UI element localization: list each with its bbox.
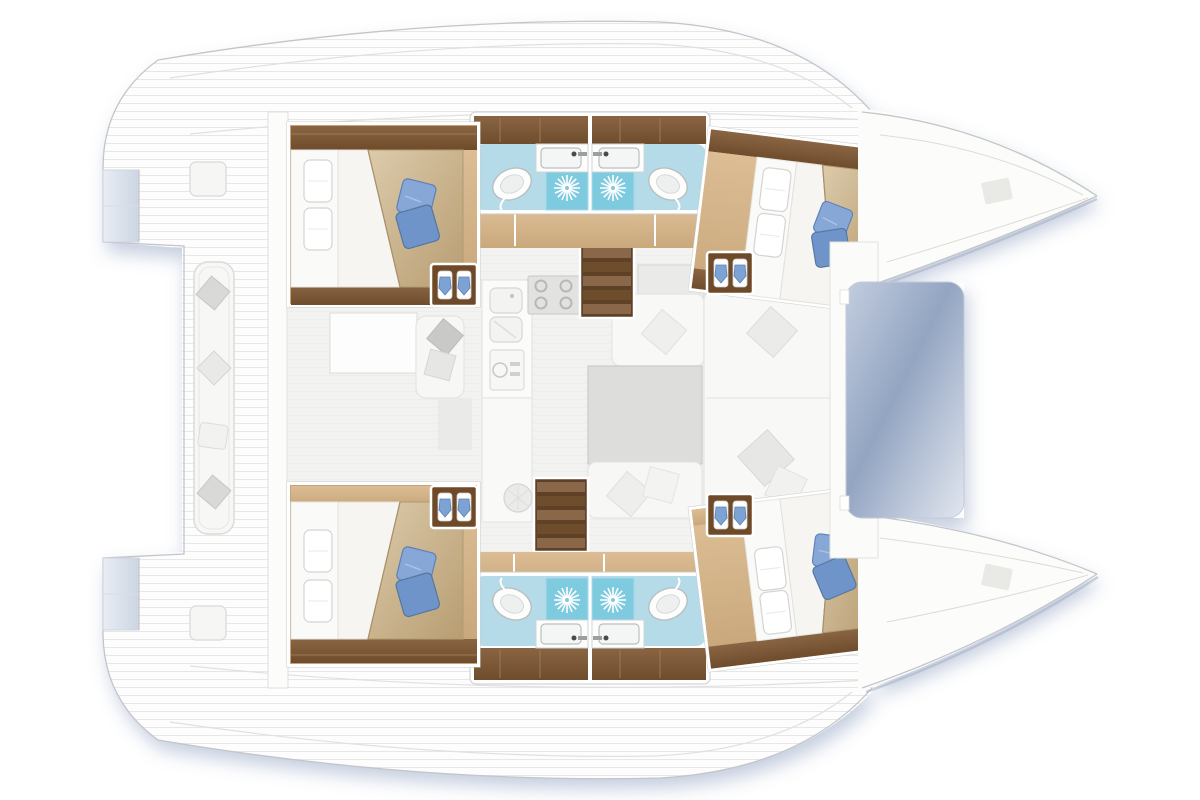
bed-pillow [304, 530, 332, 572]
cabin-headboard [291, 126, 477, 150]
bed-pillow [759, 167, 792, 212]
cockpit-locker-bottom [190, 606, 226, 640]
stairs-starboard [534, 478, 588, 552]
bed-pillow [753, 213, 786, 258]
galley-faucet [490, 350, 524, 390]
galley-stool [504, 484, 532, 512]
vanity-sink [536, 620, 588, 648]
blue-pillow-pair [395, 178, 441, 250]
shower-drain-icon [600, 587, 626, 613]
transom-steps-starboard [103, 558, 139, 630]
bed-pillow [759, 590, 792, 635]
bed-pillow [304, 580, 332, 622]
shower-drain-icon [554, 587, 580, 613]
bow-starboard [858, 512, 1098, 692]
bed-pillow [754, 546, 787, 591]
wardrobe [474, 116, 588, 144]
dinette-table [588, 366, 702, 464]
cabin-footboard [291, 639, 477, 663]
wardrobe [474, 648, 588, 680]
hull-entry-steps [707, 494, 753, 536]
galley-stove [528, 276, 580, 314]
cockpit-locker-top [190, 162, 226, 196]
wardrobe [592, 116, 706, 144]
wardrobe [592, 648, 706, 680]
floor-plan-svg [0, 0, 1200, 800]
transom-steps-port [103, 170, 139, 242]
vanity-sink [592, 144, 644, 172]
nav-seat [416, 316, 464, 398]
stairs-port [580, 244, 634, 318]
cockpit-cushion [197, 422, 228, 450]
blue-pillow-pair [395, 546, 441, 618]
vanity-sink [592, 620, 644, 648]
bed-pillow [304, 160, 332, 202]
trampoline [846, 282, 964, 518]
trampoline-lashing [840, 496, 849, 510]
bathroom-port [470, 112, 710, 214]
hull-entry-steps [431, 264, 477, 306]
vanity-sink [536, 144, 588, 172]
saloon-bulkhead [268, 112, 288, 688]
catamaran-floor-plan [0, 0, 1200, 800]
dinette [588, 290, 832, 520]
bed-pillow [304, 208, 332, 250]
saloon-chart-table [330, 313, 417, 373]
shower-drain-icon [600, 175, 626, 201]
bow-port [858, 108, 1097, 288]
bathroom-starboard [470, 572, 710, 684]
trampoline-lashing [840, 290, 849, 304]
shower-drain-icon [554, 175, 580, 201]
floor-mat [438, 398, 472, 450]
hull-entry-steps [431, 486, 477, 528]
galley-sink [490, 288, 522, 313]
hull-entry-steps [707, 252, 753, 294]
